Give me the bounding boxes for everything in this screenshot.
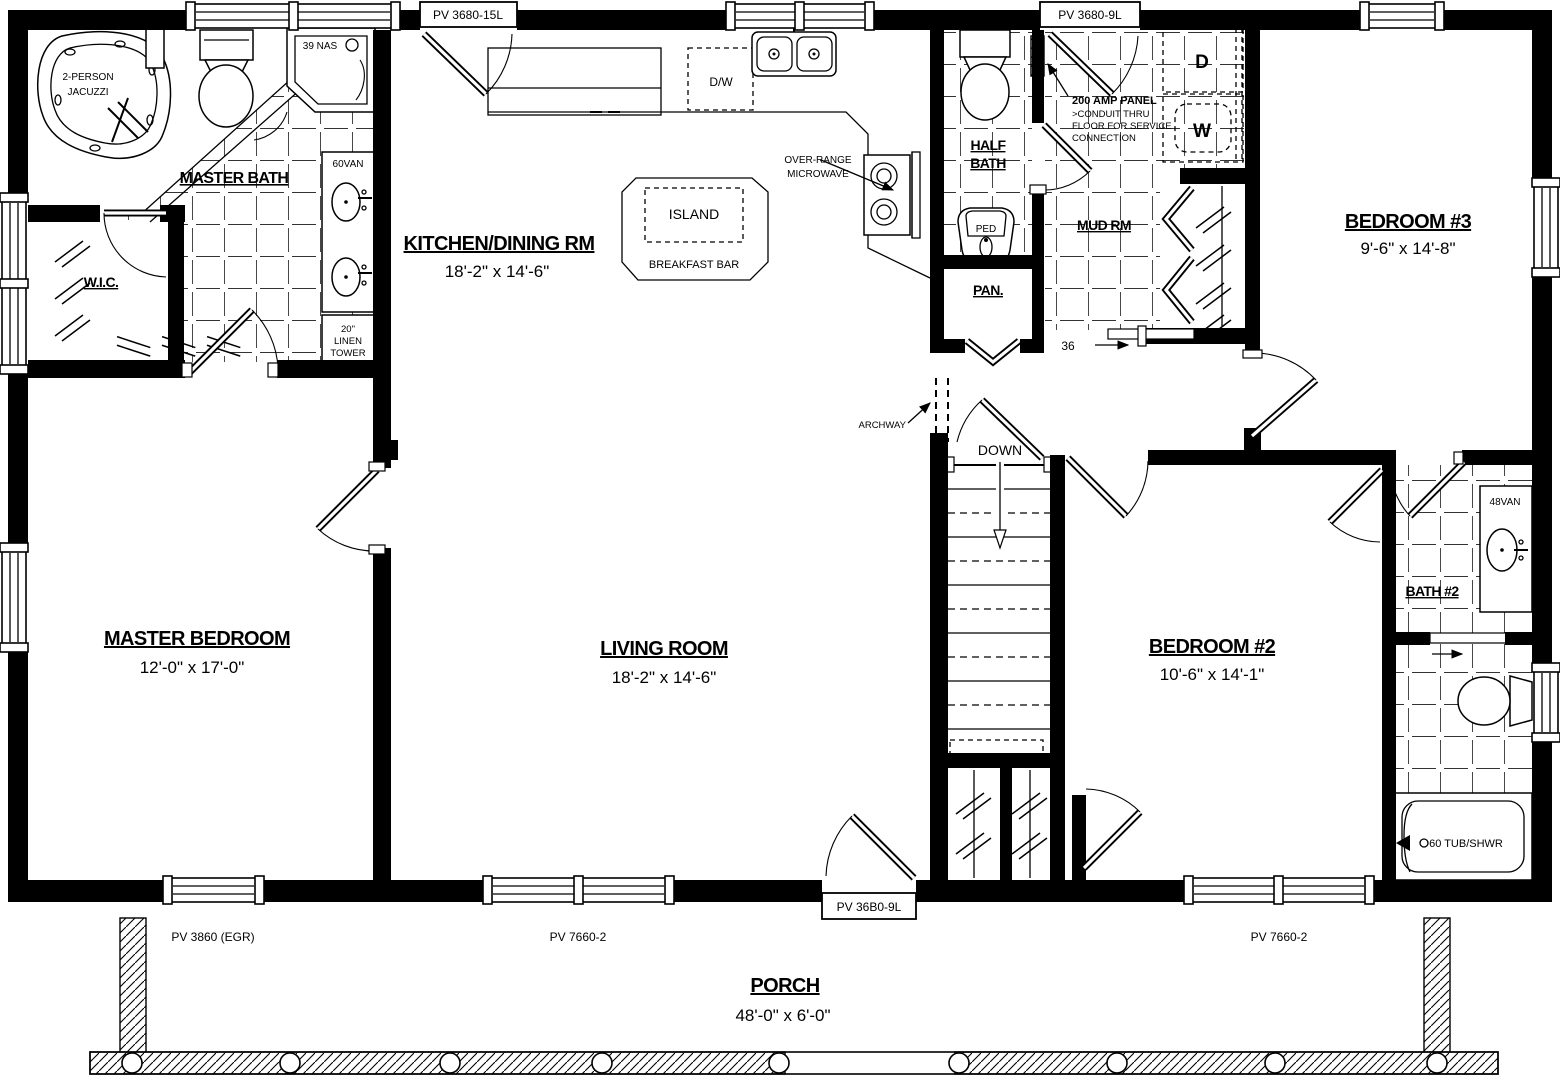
panel-note-4: CONNECTION <box>1072 133 1136 144</box>
down-label: DOWN <box>978 442 1022 458</box>
bedroom3-dims: 9'-6" x 14'-8" <box>1360 239 1455 258</box>
floor-plan-drawing: PV 3680-15L PV 3680-9L PV 36B0-9L PV 386… <box>0 0 1560 1082</box>
panel-note-2: >CONDUIT THRU <box>1072 109 1150 120</box>
floor-plan-page: PV 3680-15L PV 3680-9L PV 36B0-9L PV 386… <box>0 0 1560 1082</box>
bottom-center-window-label: PV 7660-2 <box>550 930 607 944</box>
porch-label: PORCH <box>750 975 819 997</box>
bottom-right-window-label: PV 7660-2 <box>1251 930 1308 944</box>
dryer-label: D <box>1195 52 1209 73</box>
jacuzzi-label-2: JACUZZI <box>67 87 108 98</box>
window-master-bedroom-bottom <box>163 876 264 904</box>
tub-label: 60 TUB/SHWR <box>1429 838 1503 850</box>
living-room-label: LIVING ROOM <box>600 638 728 660</box>
bottom-door-label: PV 36B0-9L <box>837 900 902 914</box>
living-room-dims: 18'-2" x 14'-6" <box>612 668 717 687</box>
porch-dims: 48'-0" x 6'-0" <box>735 1006 830 1025</box>
washer-label: W <box>1193 121 1211 142</box>
window-masterbath-top <box>186 2 400 30</box>
door-bedroom2-closet-upper <box>1330 470 1382 542</box>
door-kitchen-entry <box>424 34 512 94</box>
jacuzzi-label-1: 2-PERSON <box>62 72 113 83</box>
island-label: ISLAND <box>669 206 720 222</box>
bath2-toilet <box>1458 676 1532 726</box>
bedroom2-dims: 10'-6" x 14'-1" <box>1160 665 1265 684</box>
half-bath-label-1: HALF <box>971 137 1007 153</box>
bath2-tub <box>1394 793 1532 880</box>
door-master-bedroom <box>318 462 385 554</box>
window-master-bedroom-left <box>0 543 28 652</box>
bath2-vanity-label: 48VAN <box>1490 497 1521 508</box>
door-pantry-bifold <box>967 341 1019 362</box>
kitchen-label: KITCHEN/DINING RM <box>404 233 595 255</box>
master-bedroom-label: MASTER BEDROOM <box>104 628 290 650</box>
window-kitchen-sink <box>726 2 874 30</box>
range <box>864 152 920 238</box>
top-right-door-label: PV 3680-9L <box>1058 8 1122 22</box>
linen-label-1: 20" <box>341 324 355 335</box>
window-bedroom2-bottom <box>1184 876 1374 904</box>
master-bath-label: MASTER BATH <box>180 170 289 187</box>
wic-label: W.I.C. <box>84 274 119 290</box>
bedroom2-label: BEDROOM #2 <box>1149 636 1276 658</box>
top-left-door-label: PV 3680-15L <box>433 8 503 22</box>
bedroom3-label: BEDROOM #3 <box>1345 211 1472 233</box>
bottom-left-window-label: PV 3860 (EGR) <box>171 930 254 944</box>
door-rear-exterior <box>826 816 914 878</box>
stairs <box>936 378 1054 754</box>
panel-note-1: 200 AMP PANEL <box>1072 95 1157 107</box>
window-living-bottom <box>483 876 674 904</box>
master-vanity-label: 60VAN <box>333 159 364 170</box>
door-bedroom2 <box>1068 458 1148 516</box>
master-bedroom-dims: 12'-0" x 17'-0" <box>140 658 245 677</box>
shower-label: 39 NAS <box>303 41 338 52</box>
bath2-label: BATH #2 <box>1405 583 1459 599</box>
stair-door-width: 36 <box>1061 339 1075 353</box>
door-bedroom3 <box>1243 350 1316 436</box>
window-bedroom3-top <box>1360 2 1444 30</box>
door-closet2 <box>1084 789 1140 868</box>
kitchen-dims: 18'-2" x 14'-6" <box>445 262 550 281</box>
master-bath-toilet <box>199 30 253 127</box>
window-jacuzzi-left <box>0 193 28 374</box>
mud-room-label: MUD RM <box>1077 217 1131 233</box>
microwave-label-2: MICROWAVE <box>787 169 849 180</box>
dishwasher-label: D/W <box>709 75 733 89</box>
master-vanity <box>322 152 374 312</box>
window-bedroom3-right <box>1532 178 1560 277</box>
linen-label-2: LINEN <box>334 336 362 347</box>
microwave-label-1: OVER-RANGE <box>784 155 852 166</box>
tiled-floors <box>28 30 1532 795</box>
pantry-label: PAN. <box>973 282 1003 298</box>
panel-note-3: FLOOR FOR SERVICE <box>1072 121 1172 132</box>
linen-label-3: TOWER <box>330 348 365 359</box>
half-bath-toilet <box>960 30 1010 120</box>
window-bath2-right <box>1532 663 1560 742</box>
archway-label: ARCHWAY <box>859 420 907 431</box>
ped-label: PED <box>976 224 997 235</box>
breakfast-bar-label: BREAKFAST BAR <box>649 259 739 271</box>
half-bath-label-2: BATH <box>970 155 1006 171</box>
